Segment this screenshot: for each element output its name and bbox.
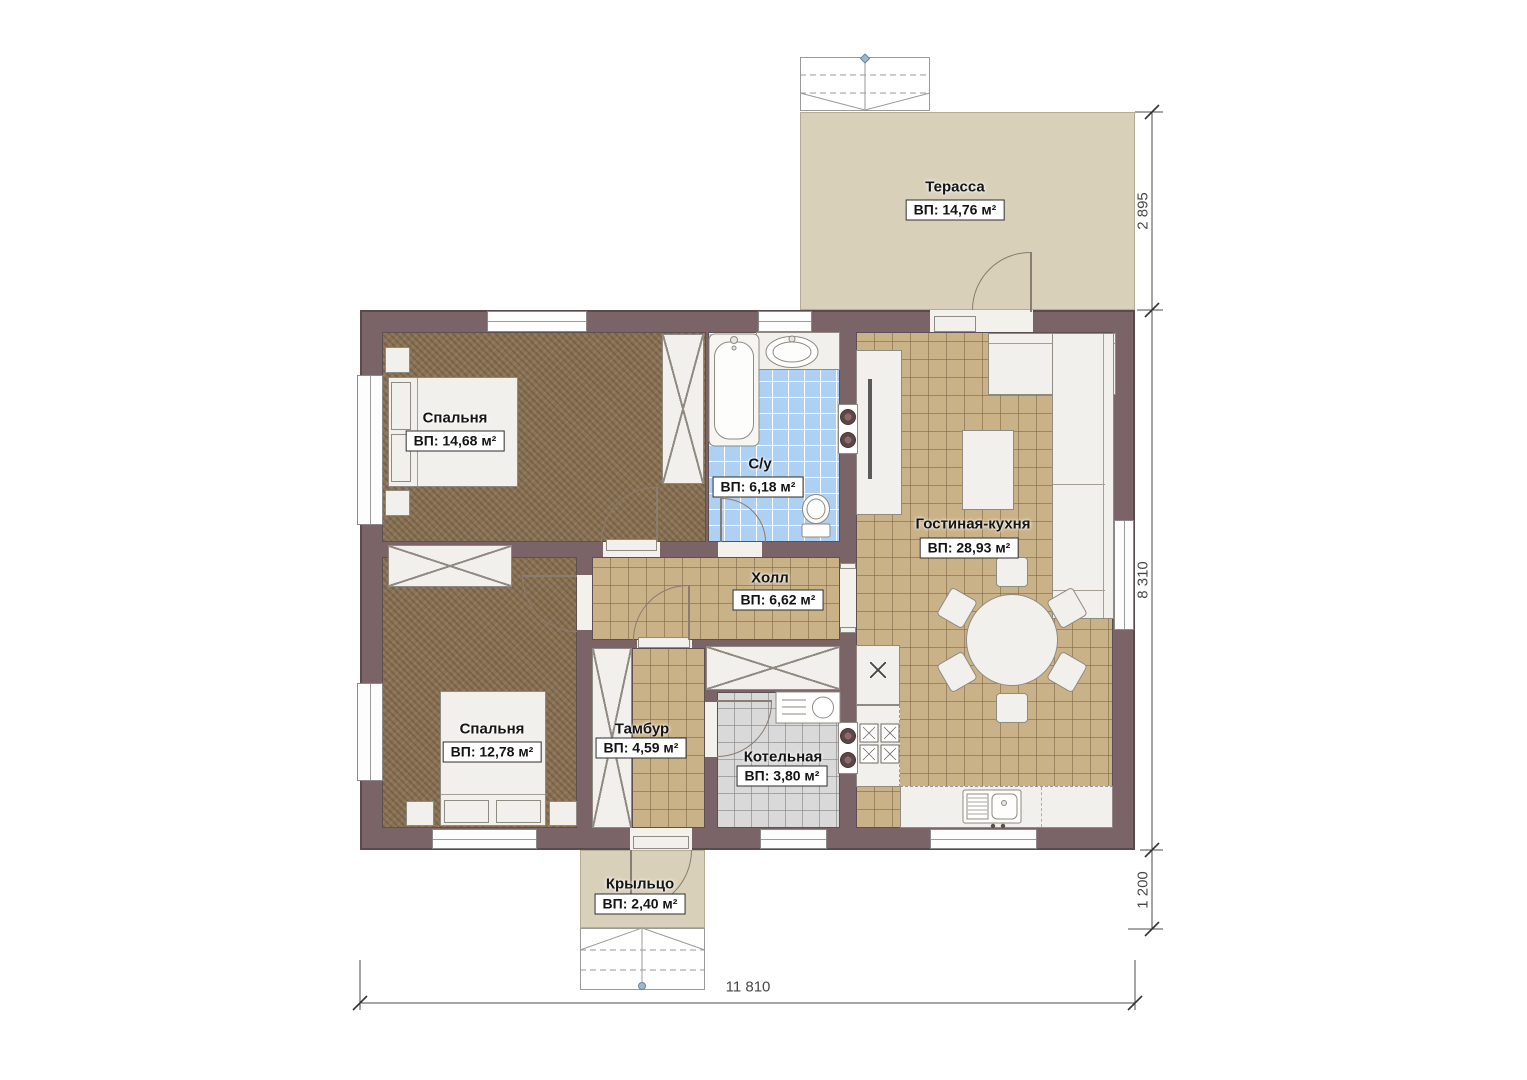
room-label-bedroom-2: Спальня	[460, 721, 525, 738]
room-area-boiler-room: ВП: 3,80 м²	[737, 766, 828, 787]
room-label-bathroom: С/у	[748, 456, 771, 473]
opening-end-cap	[840, 563, 856, 569]
kitchen-counter-bottom	[900, 786, 1113, 828]
window-living-bottom	[930, 829, 1037, 849]
room-area-porch: ВП: 2,40 м²	[595, 894, 686, 915]
vent-circle-icon	[840, 409, 856, 425]
tv-screen	[868, 379, 872, 479]
room-label-terrace: Терасса	[925, 179, 984, 196]
bedroom-1-door-leaf	[656, 487, 658, 542]
room-label-bedroom-1: Спальня	[423, 410, 488, 427]
sofa-right-section	[1052, 333, 1114, 619]
room-area-bedroom-1: ВП: 14,68 м²	[406, 431, 505, 452]
fridge-x-icon	[870, 662, 886, 678]
vestibule-door-leaf	[688, 585, 690, 640]
room-label-porch: Крыльцо	[606, 876, 674, 893]
terrace-door-leaf	[1030, 252, 1032, 312]
bedroom-2-door-opening	[577, 575, 592, 630]
entrance-door-threshold	[633, 836, 689, 849]
floor-plan: Терасса ВП: 14,76 м² Спальня ВП: 14,68 м…	[0, 0, 1527, 1080]
window-bathroom-top	[758, 311, 812, 332]
sofa-armrest-line	[1053, 590, 1105, 591]
room-label-vestibule: Тамбур	[615, 721, 669, 738]
counter-division	[1041, 787, 1042, 827]
sofa-cushion-line	[1053, 484, 1105, 485]
dimension-house-width: 11 810	[726, 979, 771, 996]
bathroom-sink-counter	[756, 332, 840, 370]
window-living-right	[1114, 520, 1134, 630]
porch-stairs-icon	[580, 928, 705, 990]
pillow	[444, 800, 489, 823]
window-bedroom-1-left	[357, 375, 383, 525]
coffee-table	[962, 430, 1014, 510]
wardrobe-hall	[706, 646, 840, 690]
vent-circle-icon	[840, 752, 856, 768]
vent-circle-icon	[840, 432, 856, 448]
bathroom-door-opening	[718, 542, 762, 557]
blanket-edge	[441, 794, 545, 795]
wardrobe-bedroom-1	[662, 334, 704, 484]
boiler-door-opening	[705, 702, 717, 757]
tv-stand	[856, 350, 902, 515]
room-area-terrace: ВП: 14,76 м²	[906, 200, 1005, 221]
dining-chair	[996, 693, 1028, 723]
window-bedroom-1-top	[487, 311, 587, 332]
window-bedroom-2-bottom	[432, 829, 537, 849]
nightstand	[385, 490, 410, 516]
window-boiler-bottom	[760, 829, 827, 849]
dining-chair	[996, 557, 1028, 587]
nightstand	[549, 801, 577, 826]
vent-circle-icon	[840, 728, 856, 744]
room-label-boiler-room: Котельная	[744, 749, 823, 766]
pillow	[496, 800, 541, 823]
dining-table	[966, 594, 1058, 686]
dimension-house-depth: 8 310	[1135, 561, 1152, 599]
nightstand	[385, 347, 410, 373]
room-area-living-kitchen: ВП: 28,93 м²	[920, 538, 1019, 559]
wardrobe-bedroom-2	[388, 545, 512, 587]
dimension-terrace-depth: 2 895	[1135, 192, 1152, 230]
nightstand	[406, 801, 434, 826]
fridge	[856, 645, 900, 705]
room-area-bathroom: ВП: 6,18 м²	[713, 477, 804, 498]
room-label-hall: Холл	[751, 570, 789, 587]
room-area-bedroom-2: ВП: 12,78 м²	[443, 742, 542, 763]
terrace-door-threshold	[934, 316, 976, 332]
room-area-vestibule: ВП: 4,59 м²	[596, 738, 687, 759]
sofa-backrest-line	[1103, 334, 1104, 618]
room-label-living-kitchen: Гостиная-кухня	[916, 516, 1031, 533]
terrace-stairs-icon	[800, 54, 930, 111]
dimension-porch-depth: 1 200	[1135, 871, 1152, 909]
pillow	[391, 382, 411, 430]
kitchen-counter-left	[856, 705, 900, 787]
hall-living-opening	[840, 566, 856, 630]
opening-end-cap	[840, 627, 856, 633]
window-bedroom-2-left	[357, 683, 383, 781]
room-area-hall: ВП: 6,62 м²	[733, 590, 824, 611]
